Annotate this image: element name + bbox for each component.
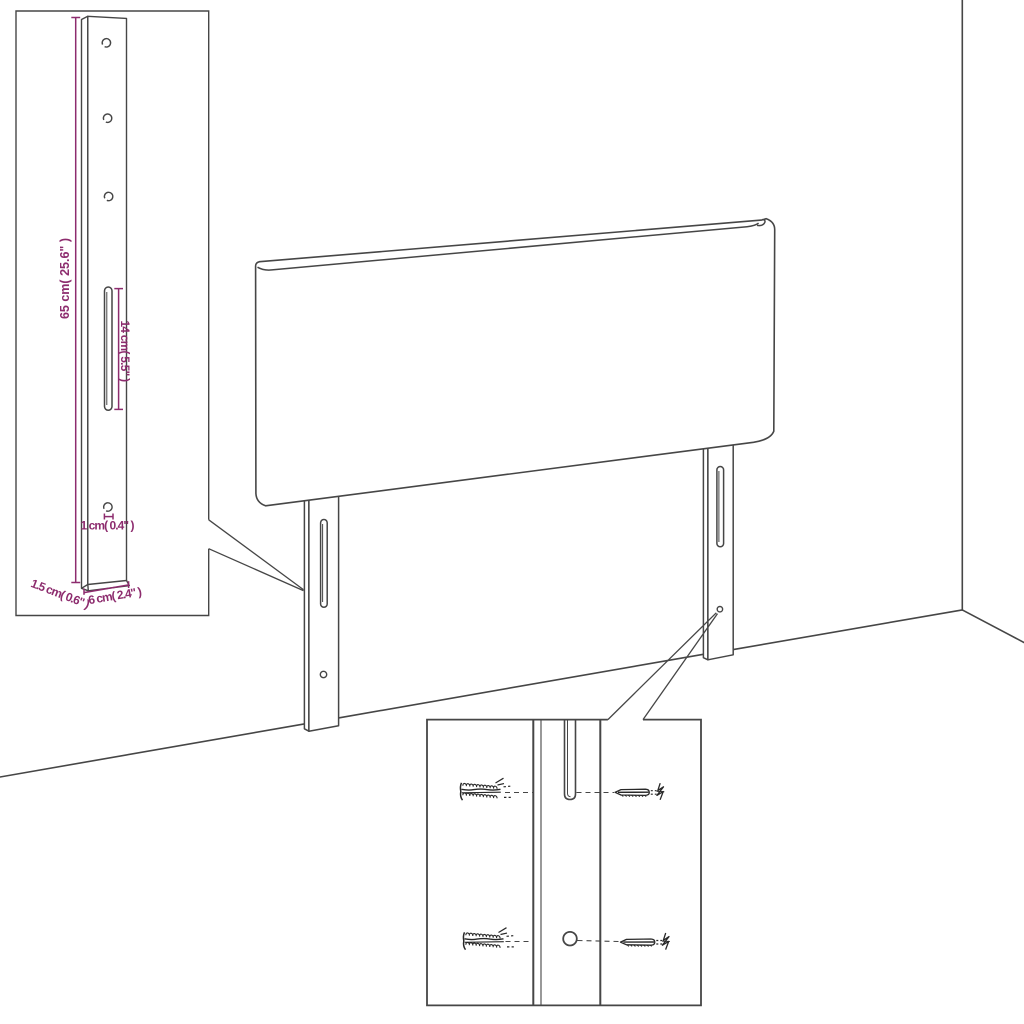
svg-text:1 cm( 0.4" ): 1 cm( 0.4" ) xyxy=(81,518,135,532)
svg-text:14 cm( 5.5" ): 14 cm( 5.5" ) xyxy=(118,321,132,383)
svg-text:65 cm( 25.6" ): 65 cm( 25.6" ) xyxy=(58,238,72,319)
